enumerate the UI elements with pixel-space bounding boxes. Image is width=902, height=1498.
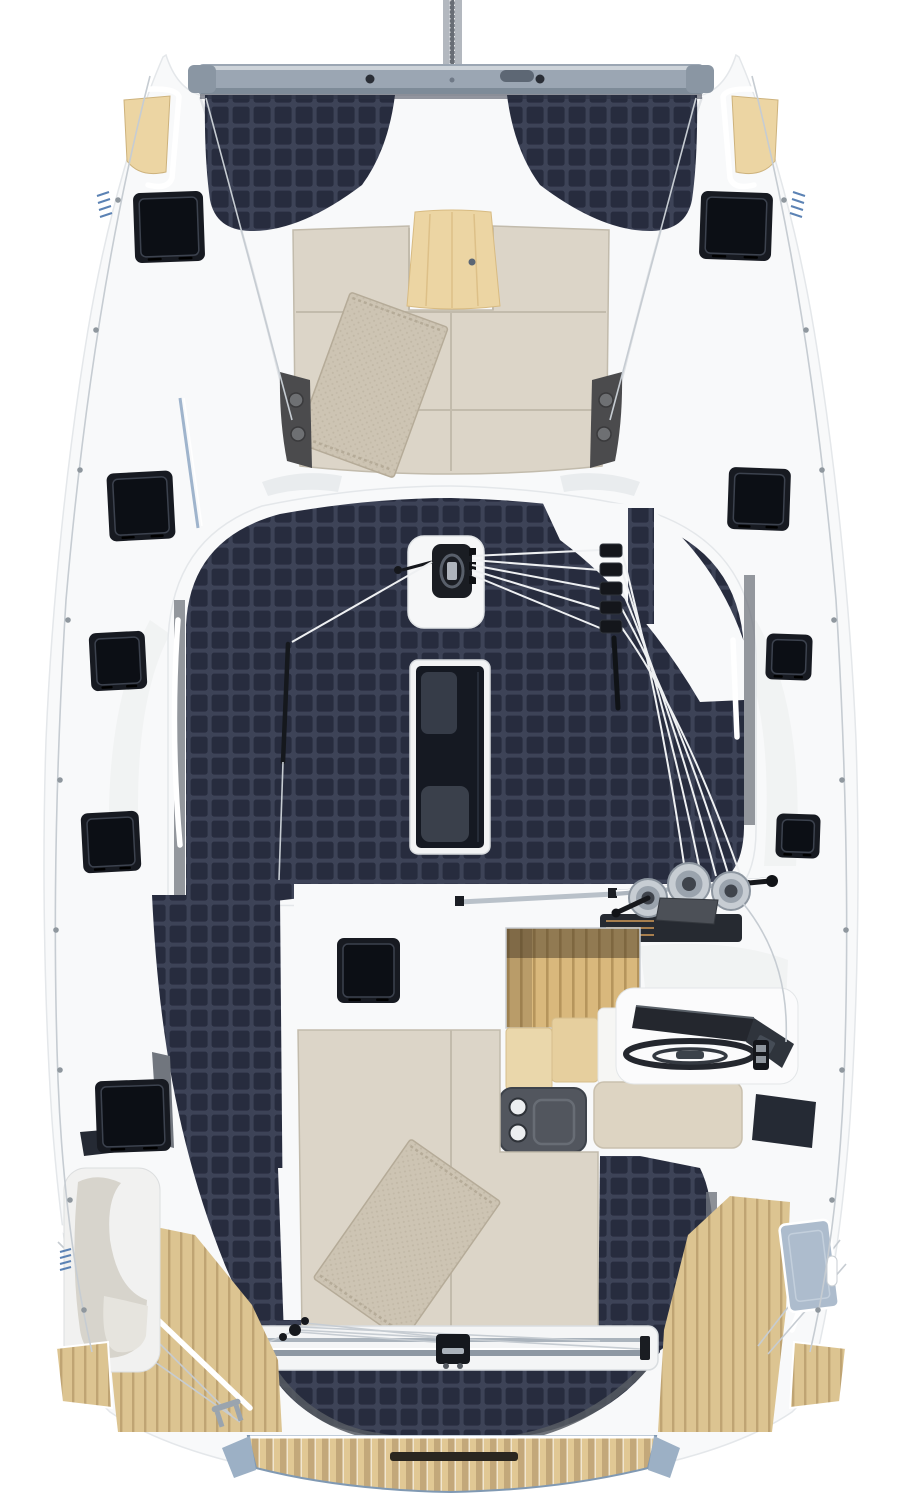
beam-bolt-1 [366, 75, 375, 84]
deck-hatch [133, 191, 205, 263]
clutch-console [656, 898, 718, 924]
table-top [407, 210, 500, 309]
beam-bolt-2 [536, 75, 545, 84]
stanchion-base [803, 327, 809, 333]
solar-trim-starboard [744, 575, 755, 825]
stanchion-base [839, 1067, 845, 1073]
foredeck-table [407, 210, 500, 309]
stanchion-base [67, 1197, 73, 1203]
stanchion-base [81, 1307, 87, 1313]
bow-seat-port [124, 96, 170, 174]
coachroof [168, 473, 756, 907]
cooler-pod [500, 1088, 586, 1152]
traveler-car [436, 1334, 470, 1369]
stanchion-base [115, 197, 121, 203]
starboard-cleat [827, 1256, 837, 1286]
port-lounge-seat [64, 1168, 160, 1372]
helm-side-console [753, 1040, 769, 1070]
deck-hatch [765, 633, 813, 681]
stanchion-base [819, 467, 825, 473]
deck-hatch [775, 813, 821, 859]
mast-step [394, 536, 484, 628]
skylight [410, 660, 490, 854]
traveler-endcap-starboard [640, 1336, 650, 1360]
beam-anchor-fitting [500, 70, 534, 82]
stanchion-base [65, 617, 71, 623]
stanchion-base [77, 467, 83, 473]
table-fitting [469, 259, 476, 266]
deck-hatch [89, 631, 148, 692]
deck-hatch [337, 938, 400, 1003]
bow-seat-starboard [732, 96, 778, 174]
deck-hatch [727, 467, 791, 531]
transom-step-port [56, 1342, 112, 1408]
deck-hatch [699, 191, 773, 261]
crossbeam-cap-starboard [686, 65, 714, 93]
deck-hatch [95, 1079, 171, 1154]
stanchion-base [53, 927, 59, 933]
stanchion-base [815, 1307, 821, 1313]
swim-grip-strip [390, 1452, 518, 1461]
cockpit-bench [594, 1082, 742, 1148]
stanchion-base [829, 1197, 835, 1203]
stanchion-base [57, 1067, 63, 1073]
crossbeam-lower-edge [198, 88, 704, 94]
stanchion-base [57, 777, 63, 783]
starboard-hull-window [752, 1094, 816, 1148]
deck-hatch [106, 470, 175, 541]
solar-wing-clutch [628, 508, 654, 624]
trampoline-shadow [200, 94, 702, 99]
beam-bolt-3 [450, 78, 455, 83]
crossbeam-cap-port [188, 65, 216, 93]
crossbeam-highlight [204, 66, 698, 70]
galley-cabinet-1 [506, 1028, 552, 1090]
transom-step-starboard [790, 1342, 846, 1408]
port-seat-backrest [103, 1296, 148, 1352]
stanchion-base [93, 327, 99, 333]
stanchion-base [843, 927, 849, 933]
foredeck-lounge [280, 210, 622, 478]
galley-cabinet-2 [552, 1018, 598, 1082]
stanchion-base [781, 197, 787, 203]
deck-hatch [80, 811, 141, 874]
stanchion-base [831, 617, 837, 623]
catamaran-aerial-render [0, 0, 902, 1498]
stanchion-base [839, 777, 845, 783]
